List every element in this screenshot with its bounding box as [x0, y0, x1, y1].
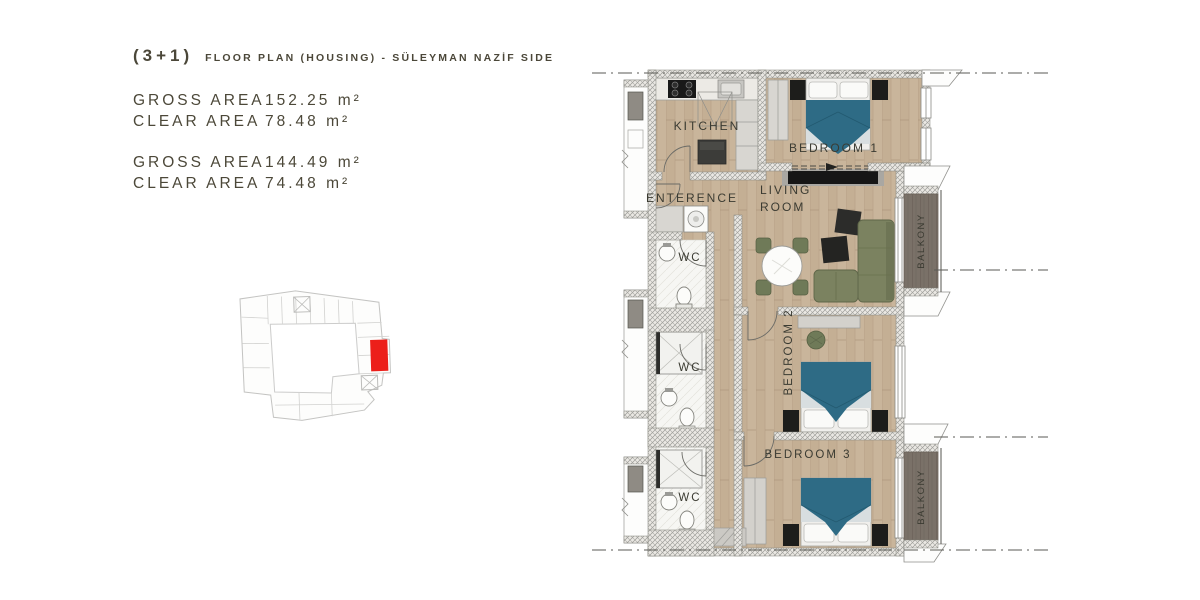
label-living-2: ROOM: [760, 200, 805, 214]
stove: [668, 80, 696, 98]
washbasin: [661, 494, 677, 510]
bedroom3-furniture: [744, 478, 888, 546]
bed-2: [801, 362, 871, 432]
gross-area-row-2: GROSS AREA 144.49 m²: [133, 154, 362, 175]
washbasin: [659, 245, 675, 261]
label-bedroom-3: BEDROOM 3: [764, 449, 851, 461]
shaft-unit: [628, 92, 643, 120]
gross-area-row-1: GROSS AREA 152.25 m²: [133, 92, 362, 113]
clear-area-value: 74.48 m²: [265, 175, 350, 193]
key-plan: [237, 286, 399, 428]
nightstand: [783, 524, 799, 546]
nightstand: [783, 410, 799, 432]
nightstand: [872, 524, 888, 546]
toilet: [677, 287, 691, 305]
key-plan-highlight-unit: [370, 339, 388, 371]
toilet: [680, 511, 694, 529]
gross-area-label: GROSS AREA: [133, 92, 265, 110]
area-summary-1: GROSS AREA 152.25 m² CLEAR AREA 78.48 m²: [133, 92, 362, 134]
shaft-unit: [628, 466, 643, 492]
area-summary-2: GROSS AREA 144.49 m² CLEAR AREA 74.48 m²: [133, 154, 362, 196]
nightstand: [872, 410, 888, 432]
gross-area-label: GROSS AREA: [133, 154, 265, 172]
nightstand: [872, 80, 888, 100]
label-living-1: LIVING: [760, 183, 811, 197]
toilet: [680, 408, 694, 426]
entrance-furniture: [653, 206, 708, 232]
label-enterence: ENTERENCE: [646, 191, 738, 205]
left-shafts: [622, 80, 648, 543]
bedroom2-window: [895, 346, 905, 418]
bed-3: [801, 478, 871, 546]
clear-area-label: CLEAR AREA: [133, 175, 265, 193]
label-balkony-2: BALKONY: [916, 469, 927, 524]
gross-area-value: 144.49 m²: [265, 154, 362, 172]
balcony2-glass-door: [895, 458, 905, 538]
info-panel: (3+1) FLOOR PLAN (HOUSING) - SÜLEYMAN NA…: [0, 0, 560, 600]
dresser: [798, 316, 860, 328]
label-wc-3: WC: [678, 492, 701, 504]
label-bedroom-1: BEDROOM 1: [789, 141, 879, 155]
page-title: (3+1) FLOOR PLAN (HOUSING) - SÜLEYMAN NA…: [133, 46, 554, 66]
label-bedroom-2: BEDROOM 2: [783, 308, 795, 395]
shaft-unit: [628, 300, 643, 328]
clear-area-value: 78.48 m²: [265, 113, 350, 131]
label-balkony-1: BALKONY: [916, 213, 927, 268]
clear-area-row-1: CLEAR AREA 78.48 m²: [133, 113, 362, 134]
clear-area-label: CLEAR AREA: [133, 113, 265, 131]
page: { "header": { "unit_type": "(3+1)", "tit…: [0, 0, 1200, 600]
label-wc-2: WC: [678, 362, 701, 374]
label-kitchen: KITCHEN: [674, 119, 741, 133]
nightstand: [790, 80, 806, 100]
floor-plan: KITCHEN BEDROOM 1 ENTERENCE LIVING ROOM …: [585, 50, 1055, 590]
gross-area-value: 152.25 m²: [265, 92, 362, 110]
unit-type-label: (3+1): [133, 46, 193, 66]
label-wc-1: WC: [678, 252, 701, 264]
plan-title-label: FLOOR PLAN (HOUSING) - SÜLEYMAN NAZİF SI…: [205, 52, 554, 64]
clear-area-row-2: CLEAR AREA 74.48 m²: [133, 175, 362, 196]
washbasin: [661, 390, 677, 406]
balcony1-glass-door: [895, 198, 905, 282]
